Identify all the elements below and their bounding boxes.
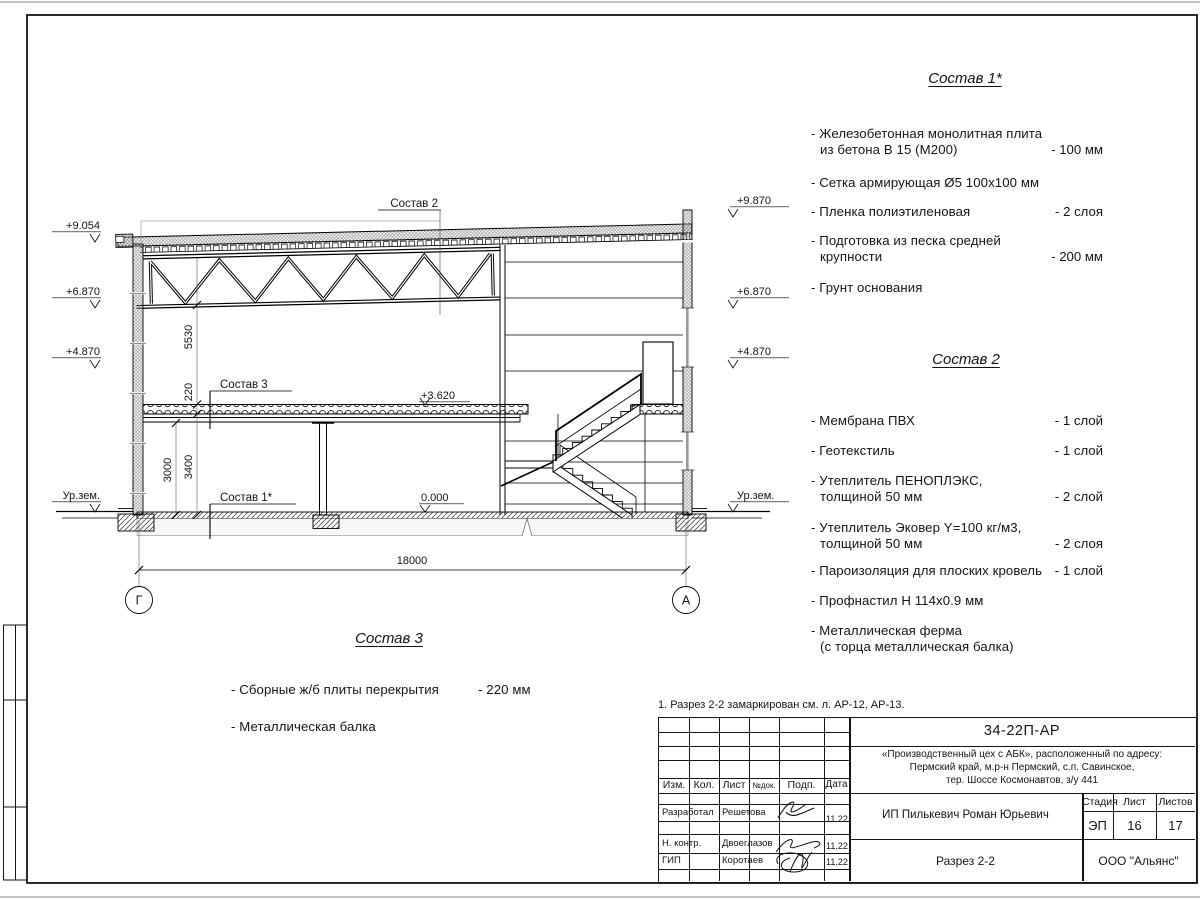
callout-sostav1: Состав 1* — [220, 492, 273, 504]
date-ncontrol: 11.22 — [826, 841, 848, 851]
date-gip: 11.22 — [826, 857, 848, 867]
list-value: - 2 слоя — [1003, 536, 1103, 551]
list-item: - Подготовка из песка средней — [811, 233, 1001, 248]
drawing-sheet: Состав 2 Состав 3 Состав 1* +9.054 +6.87… — [0, 0, 1200, 900]
list-item: (с торца металлическая балка) — [820, 639, 1014, 654]
list-item: - Профнастил Н 114х0.9 мм — [811, 593, 983, 608]
sheet-value: 16 — [1113, 818, 1156, 833]
title-block: Изм. Кол. Лист №док. Подп. Дата Разработ… — [658, 717, 1197, 883]
comp3-title: Состав 3 — [304, 630, 474, 647]
interior-wall — [500, 245, 505, 515]
level-right-1: +9.870 — [737, 195, 771, 207]
list-item: - Сетка армирующая Ø5 100х100 мм — [811, 175, 1039, 190]
col-list: Лист — [719, 779, 749, 791]
axis-label-g: Г — [136, 594, 143, 608]
list-value: - 1 слой — [1003, 443, 1103, 458]
company: ООО "Альянс" — [1082, 854, 1195, 868]
dim-span: 18000 — [397, 555, 428, 567]
dim-slab: 220 — [183, 383, 195, 401]
level-right-2: +6.870 — [737, 286, 771, 298]
list-item: толщиной 50 мм — [820, 536, 922, 551]
level-right-ground: Ур.зем. — [737, 490, 774, 502]
steel-beam — [143, 414, 520, 422]
list-value: - 200 мм — [1003, 249, 1103, 264]
project-line2: Пермский край, м.р-н Пермский, с.п. Сави… — [851, 762, 1193, 773]
level-floor1: 0.000 — [421, 492, 449, 504]
level-left-3: +4.870 — [66, 346, 100, 358]
col-ndok: №док. — [749, 781, 779, 790]
col-izm: Изм. — [659, 779, 689, 791]
list-item: толщиной 50 мм — [820, 489, 922, 504]
sheets-value: 17 — [1156, 818, 1195, 833]
list-item: крупности — [820, 249, 882, 264]
axis-label-a: А — [682, 594, 691, 608]
right-wall — [681, 210, 694, 515]
list-item: - Мембрана ПВХ — [811, 413, 915, 428]
callout-sostav3: Состав 3 — [220, 379, 268, 391]
name-developer: Решетова — [722, 807, 766, 818]
list-item: - Утеплитель ПЕНОПЛЭКС, — [811, 473, 983, 488]
comp1-title: Состав 1* — [880, 70, 1050, 87]
level-left-ground: Ур.зем. — [63, 490, 100, 502]
ground-slab — [137, 512, 688, 536]
door — [643, 342, 673, 404]
list-item: - Грунт основания — [811, 280, 922, 295]
list-value: - 220 мм — [478, 682, 531, 697]
list-item: - Геотекстиль — [811, 443, 895, 458]
date-developer: 11.22 — [826, 814, 848, 824]
callout-sostav2: Состав 2 — [390, 198, 438, 210]
project-line3: тер. Шоссе Космонавтов, з/у 441 — [851, 775, 1193, 786]
list-value: - 1 слой — [1003, 563, 1103, 578]
list-value: - 2 слоя — [1003, 204, 1103, 219]
role-gip: ГИП — [662, 855, 681, 866]
sheets-label: Листов — [1156, 796, 1195, 808]
project-line1: «Производственный цех с АБК», расположен… — [851, 749, 1193, 760]
list-item: - Металлическая балка — [231, 719, 376, 734]
dim-h1: 3000 — [162, 458, 174, 482]
level-right-3: +4.870 — [737, 346, 771, 358]
dim-h2: 3400 — [183, 455, 195, 479]
roof-truss-group — [116, 221, 694, 308]
sheet-label: Лист — [1113, 796, 1156, 808]
comp2-title: Состав 2 — [881, 351, 1051, 368]
list-item: - Пленка полиэтиленовая — [811, 204, 970, 219]
list-item: из бетона В 15 (М200) — [820, 142, 958, 157]
list-item: - Железобетонная монолитная плита — [811, 126, 1042, 141]
name-gip: Коротаев — [722, 855, 763, 866]
col-data: Дата — [824, 779, 849, 790]
sheet-note: 1. Разрез 2-2 замаркирован см. л. АР-12,… — [658, 699, 904, 711]
sheet-title: Разрез 2-2 — [849, 854, 1082, 868]
level-left-2: +6.870 — [66, 286, 100, 298]
elevation-marks-right — [728, 207, 789, 512]
margin-boxes — [4, 625, 28, 880]
doc-number: 34-22П-АР — [849, 723, 1195, 739]
steel-truss — [135, 249, 504, 307]
list-item: - Утеплитель Эковер Y=100 кг/м3, — [811, 520, 1021, 535]
floor-slab-left — [143, 405, 528, 415]
stage-label: Стадия — [1082, 796, 1113, 808]
level-floor2: +3.620 — [421, 390, 455, 402]
interior-column — [312, 423, 334, 515]
staircase — [501, 374, 641, 525]
level-left-1: +9.054 — [66, 220, 100, 232]
list-value: - 1 слой — [1003, 413, 1103, 428]
dim-truss: 5530 — [183, 325, 195, 349]
col-podp: Подп. — [779, 779, 824, 791]
client: ИП Пилькевич Роман Юрьевич — [849, 809, 1082, 821]
name-ncontrol: Двоеглазов — [722, 838, 773, 849]
list-item: - Сборные ж/б плиты перекрытия — [231, 682, 439, 697]
left-wall — [130, 244, 146, 515]
list-value: - 100 мм — [1003, 142, 1103, 157]
role-ncontrol: Н. контр. — [662, 838, 701, 849]
col-kol: Кол. — [689, 779, 719, 791]
list-item: - Металлическая ферма — [811, 623, 962, 638]
paper-edge-bottom — [0, 896, 1200, 898]
role-developer: Разработал — [662, 807, 714, 818]
stage-value: ЭП — [1082, 818, 1113, 833]
paper-edge-top — [0, 1, 1200, 3]
list-value: - 2 слой — [1003, 489, 1103, 504]
elevation-marks-left — [52, 232, 101, 512]
